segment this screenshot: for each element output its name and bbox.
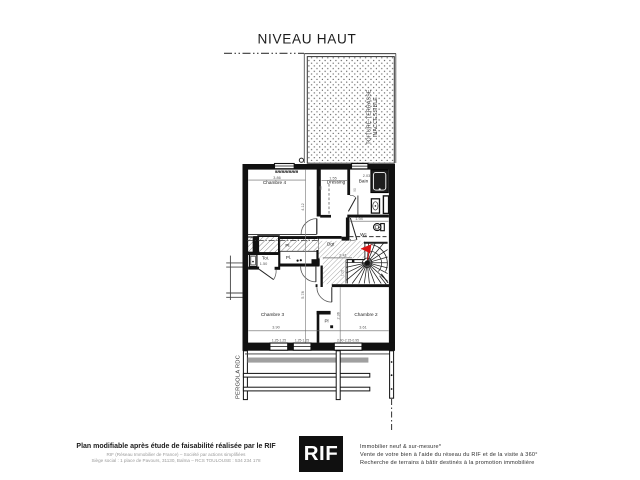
svg-text:Toi.: Toi. xyxy=(262,255,269,260)
svg-text:5.78: 5.78 xyxy=(301,291,305,298)
svg-text:Pl.: Pl. xyxy=(285,243,290,248)
svg-text:Dgt: Dgt xyxy=(327,242,335,247)
svg-text:PERGOLA RDC: PERGOLA RDC xyxy=(236,355,242,399)
svg-text:1.94: 1.94 xyxy=(355,217,362,221)
svg-text:1.55: 1.55 xyxy=(329,177,336,181)
svg-text:1.25·1.25: 1.25·1.25 xyxy=(272,339,286,343)
svg-text:3.86: 3.86 xyxy=(273,176,280,180)
svg-text:Pl.: Pl. xyxy=(286,255,291,260)
svg-text:2.36: 2.36 xyxy=(336,312,340,319)
svg-text:2.03: 2.03 xyxy=(363,174,370,178)
svg-text:1.50: 1.50 xyxy=(260,262,267,266)
svg-text:Chambre 2: Chambre 2 xyxy=(354,312,378,317)
svg-text:Chambre 4: Chambre 4 xyxy=(263,180,287,185)
svg-text:3.61: 3.61 xyxy=(359,326,366,330)
svg-text:Pl: Pl xyxy=(324,318,328,323)
svg-text:4.12: 4.12 xyxy=(301,203,305,210)
svg-text:1.05: 1.05 xyxy=(340,270,344,277)
svg-text:3.90: 3.90 xyxy=(272,326,279,330)
svg-text:80: 80 xyxy=(319,186,323,190)
svg-text:Chambre 3: Chambre 3 xyxy=(261,312,285,317)
svg-text:2.41: 2.41 xyxy=(339,254,346,258)
svg-text:NIVEAU HAUT: NIVEAU HAUT xyxy=(257,32,356,47)
svg-text:90: 90 xyxy=(353,188,357,192)
svg-text:TOITURE TERRASSE: TOITURE TERRASSE xyxy=(367,89,373,145)
svg-text:Wc: Wc xyxy=(360,232,367,237)
svg-text:1.25·1.25: 1.25·1.25 xyxy=(295,339,309,343)
svg-text:INACCESSIBLE: INACCESSIBLE xyxy=(373,97,379,138)
svg-text:Bain: Bain xyxy=(359,179,369,184)
